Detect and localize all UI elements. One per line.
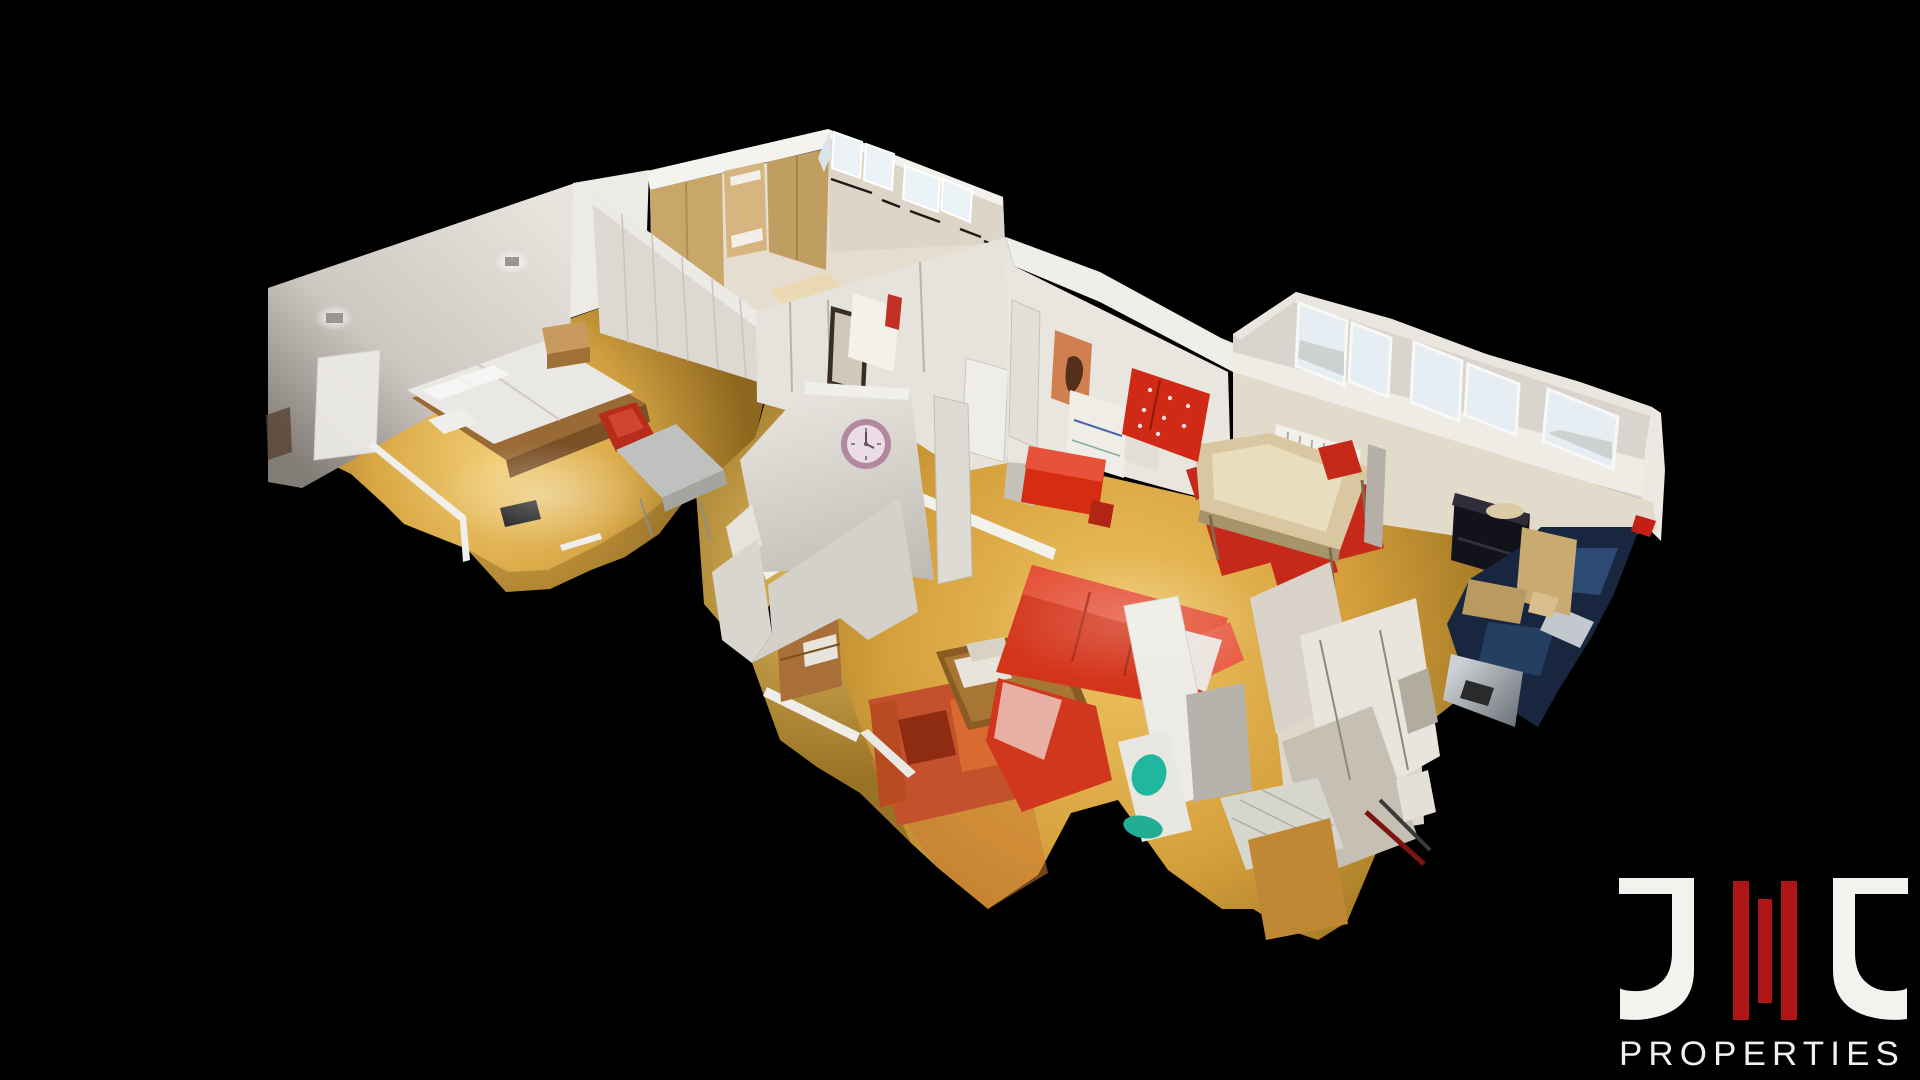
svg-text:PROPERTIES: PROPERTIES (1619, 1035, 1905, 1073)
